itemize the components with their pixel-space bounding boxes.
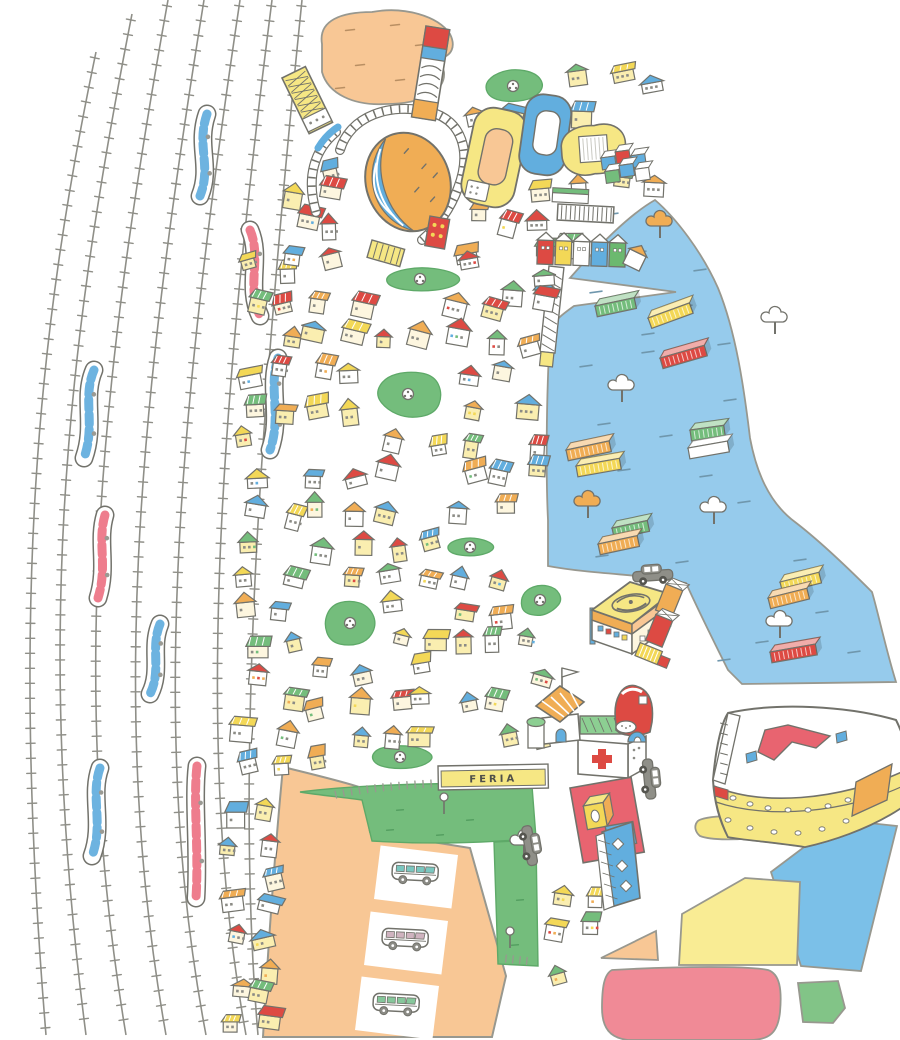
small-building	[460, 456, 491, 484]
small-building	[308, 536, 335, 565]
small-building	[406, 726, 434, 747]
tree	[761, 306, 787, 334]
small-building	[247, 663, 270, 686]
small-building	[490, 359, 514, 382]
white-flag-icon	[562, 668, 578, 677]
small-building	[495, 208, 523, 239]
small-building	[282, 502, 308, 532]
small-building	[462, 399, 484, 421]
train-blue	[92, 768, 104, 856]
small-building	[348, 686, 373, 715]
small-building	[273, 404, 298, 425]
small-building	[237, 531, 258, 553]
small-building	[281, 565, 310, 590]
small-building	[353, 531, 374, 556]
small-building	[517, 627, 537, 647]
soccer-ball-icon	[465, 542, 476, 553]
small-building	[375, 329, 393, 348]
small-building	[461, 433, 484, 460]
soccer-park	[521, 585, 560, 615]
small-building	[410, 652, 434, 675]
parking-slot	[364, 911, 448, 974]
small-building	[487, 567, 511, 591]
small-building	[306, 744, 329, 770]
small-building	[417, 527, 444, 552]
district-zones	[601, 816, 897, 1040]
illustrated-city-map: FERIA	[0, 0, 900, 1040]
small-building	[268, 601, 291, 622]
small-building	[318, 245, 344, 271]
small-building	[253, 797, 276, 822]
small-building	[311, 657, 333, 678]
soccer-ball-icon	[508, 81, 519, 92]
soccer-park	[448, 538, 494, 556]
small-building	[483, 686, 510, 712]
small-building	[546, 963, 569, 986]
small-building	[235, 365, 266, 390]
soccer-park	[378, 372, 441, 417]
yellow-quad-zone	[679, 878, 800, 965]
small-building	[221, 1015, 241, 1033]
red-blob-zone	[602, 967, 781, 1040]
small-building	[569, 101, 596, 129]
small-building	[307, 290, 330, 314]
small-building	[305, 492, 324, 518]
train-pink	[98, 515, 110, 598]
small-building	[514, 393, 542, 420]
parking-slot	[355, 976, 439, 1039]
small-building	[487, 330, 507, 355]
small-building	[427, 434, 450, 457]
small-building	[339, 318, 371, 347]
landmark-warehouse	[551, 188, 615, 223]
soccer-ball-icon	[395, 752, 406, 763]
feria-sign-label: FERIA	[469, 774, 517, 786]
small-building	[373, 452, 403, 482]
small-building	[453, 602, 479, 622]
soccer-ball-icon	[415, 274, 426, 285]
small-building	[235, 748, 262, 775]
small-building	[232, 424, 253, 447]
small-building	[495, 494, 518, 514]
train-blue	[84, 370, 96, 458]
small-building	[498, 722, 521, 747]
small-building	[352, 726, 372, 748]
small-building	[483, 626, 503, 652]
soccer-ball-icon	[535, 595, 546, 606]
small-building	[609, 62, 639, 84]
small-building	[225, 802, 249, 828]
small-building	[454, 629, 474, 654]
small-building	[313, 352, 338, 380]
small-building	[282, 245, 305, 267]
parking-slot	[374, 845, 458, 908]
small-building	[341, 466, 369, 490]
small-building	[444, 316, 474, 347]
landmark-trellis-tower	[596, 822, 640, 910]
small-building	[246, 636, 272, 658]
small-building	[551, 884, 575, 907]
small-building	[447, 501, 469, 525]
small-building	[372, 499, 400, 526]
soccer-park	[387, 268, 460, 291]
small-building	[349, 662, 374, 686]
small-building	[565, 63, 590, 87]
small-building	[380, 426, 406, 454]
small-building	[405, 318, 435, 350]
small-building	[244, 394, 268, 417]
small-building	[243, 493, 270, 519]
green-poly-zone	[798, 981, 845, 1023]
small-building	[525, 209, 549, 230]
small-building	[417, 568, 443, 590]
train-pink	[196, 766, 205, 898]
small-building	[379, 589, 404, 613]
small-building	[423, 629, 450, 650]
train-blue	[150, 624, 163, 694]
small-building	[581, 912, 602, 935]
soccer-park	[373, 746, 433, 769]
small-building	[528, 179, 554, 202]
soccer-ball-icon	[403, 389, 414, 400]
small-building	[298, 319, 327, 344]
small-building	[218, 836, 238, 855]
small-building	[529, 666, 556, 688]
small-building	[283, 630, 304, 653]
small-building	[542, 917, 569, 943]
small-building	[245, 468, 270, 488]
landmark-shoe-pavilion	[615, 685, 652, 742]
small-building	[302, 697, 328, 722]
small-building	[318, 175, 348, 201]
small-building	[342, 567, 364, 587]
small-building	[349, 290, 381, 320]
small-building	[218, 888, 248, 912]
train-blue	[200, 114, 212, 196]
small-building	[338, 397, 361, 426]
small-building	[343, 502, 365, 527]
small-building	[389, 537, 409, 563]
signs: FERIA	[438, 764, 548, 790]
soccer-park	[325, 601, 375, 645]
small-building	[457, 364, 482, 387]
small-building	[233, 566, 254, 587]
small-building	[376, 562, 403, 585]
small-building	[458, 690, 480, 712]
small-building	[448, 564, 471, 590]
small-building	[486, 458, 514, 487]
small-building	[638, 73, 665, 94]
small-building	[337, 363, 360, 384]
orange-tri-zone	[601, 931, 658, 960]
feria-sign: FERIA	[438, 764, 548, 790]
small-building	[303, 392, 333, 420]
small-building	[303, 469, 324, 488]
soccer-ball-icon	[345, 618, 356, 629]
small-building	[274, 718, 301, 748]
small-building	[440, 290, 471, 321]
small-building	[392, 626, 413, 646]
